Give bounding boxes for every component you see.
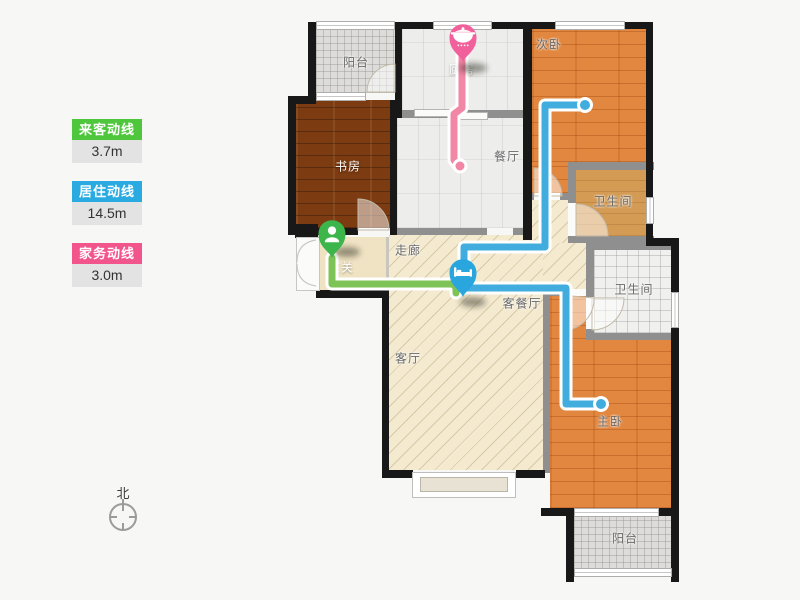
window-balcony-study [316, 92, 366, 101]
bath1-door-gap [568, 203, 576, 237]
living-master-wall [543, 289, 550, 473]
study-west-wall [288, 96, 296, 230]
balcony-top-west-wall [308, 22, 316, 98]
legend-value-housework: 3.0m [72, 264, 142, 287]
window-bath2 [671, 292, 679, 328]
compass-north-label: 北 [116, 483, 129, 502]
room-floor-hall-east [543, 243, 586, 289]
room-label-hallway: 走廊 [395, 242, 421, 259]
window-bedroom2 [555, 21, 625, 30]
dining-south-wall [390, 228, 487, 235]
bedroom2-door-gap [534, 193, 560, 200]
window-master-balcony [574, 508, 659, 517]
window-balcony-bottom [574, 568, 672, 577]
living-west-wall [382, 296, 389, 478]
living-south-wall-right [516, 470, 545, 478]
room-label-balcony-top: 阳台 [343, 54, 369, 71]
dining-south-wall [513, 228, 523, 235]
balcony-bottom-west-wall [566, 508, 574, 582]
room-label-kitchen: 厨房 [449, 61, 475, 78]
master-door-gap [565, 289, 586, 296]
room-label-dining: 餐厅 [494, 148, 520, 165]
living-south-wall-left [382, 470, 413, 478]
bath2-door-gap [586, 297, 594, 329]
entry-jamb-wall [295, 224, 318, 238]
east-wall-lower [671, 238, 679, 582]
legend-item-housework[interactable]: 家务动线 3.0m [72, 243, 142, 287]
room-floor-hall-extension [530, 197, 568, 243]
legend-item-visitor[interactable]: 来客动线 3.7m [72, 119, 142, 163]
study-east-wall [390, 100, 397, 235]
legend-label-visitor: 来客动线 [72, 119, 142, 140]
legend-label-housework: 家务动线 [72, 243, 142, 264]
bath1-south-wall [568, 236, 654, 243]
room-label-study: 书房 [335, 158, 361, 175]
room-label-entry: 玄关 [328, 259, 354, 276]
kitchen-east-wall [523, 22, 532, 240]
room-label-bedroom2: 次卧 [536, 36, 562, 53]
floorplan-viewer: 来客动线 3.7m 居住动线 14.5m 家务动线 3.0m [0, 0, 800, 600]
legend-value-visitor: 3.7m [72, 140, 142, 163]
bay-window-inner [420, 477, 508, 492]
window-bath1 [646, 197, 654, 224]
legend-label-living: 居住动线 [72, 181, 142, 202]
room-label-master: 主卧 [597, 413, 623, 430]
kitchen-sliding-door [448, 112, 488, 120]
room-floor-dining [397, 118, 523, 228]
compass-icon [106, 496, 140, 536]
master-south-wall-right [659, 508, 672, 516]
room-floor-bedroom2-lobe [530, 162, 568, 193]
window-balcony-top [316, 21, 395, 30]
legend-item-living[interactable]: 居住动线 14.5m [72, 181, 142, 225]
room-label-balcony-bottom: 阳台 [612, 530, 638, 547]
entry-south-wall [316, 290, 389, 298]
legend-value-living: 14.5m [72, 202, 142, 225]
room-label-bath1: 卫生间 [593, 193, 632, 210]
room-label-living: 客厅 [395, 350, 421, 367]
room-label-living-dining: 客餐厅 [502, 295, 541, 312]
kitchen-sliding-door [414, 109, 452, 117]
entry-door-recess [296, 237, 320, 291]
room-label-bath2: 卫生间 [614, 281, 653, 298]
entry-threshold [386, 237, 389, 290]
bath1-north-wall [568, 162, 654, 170]
